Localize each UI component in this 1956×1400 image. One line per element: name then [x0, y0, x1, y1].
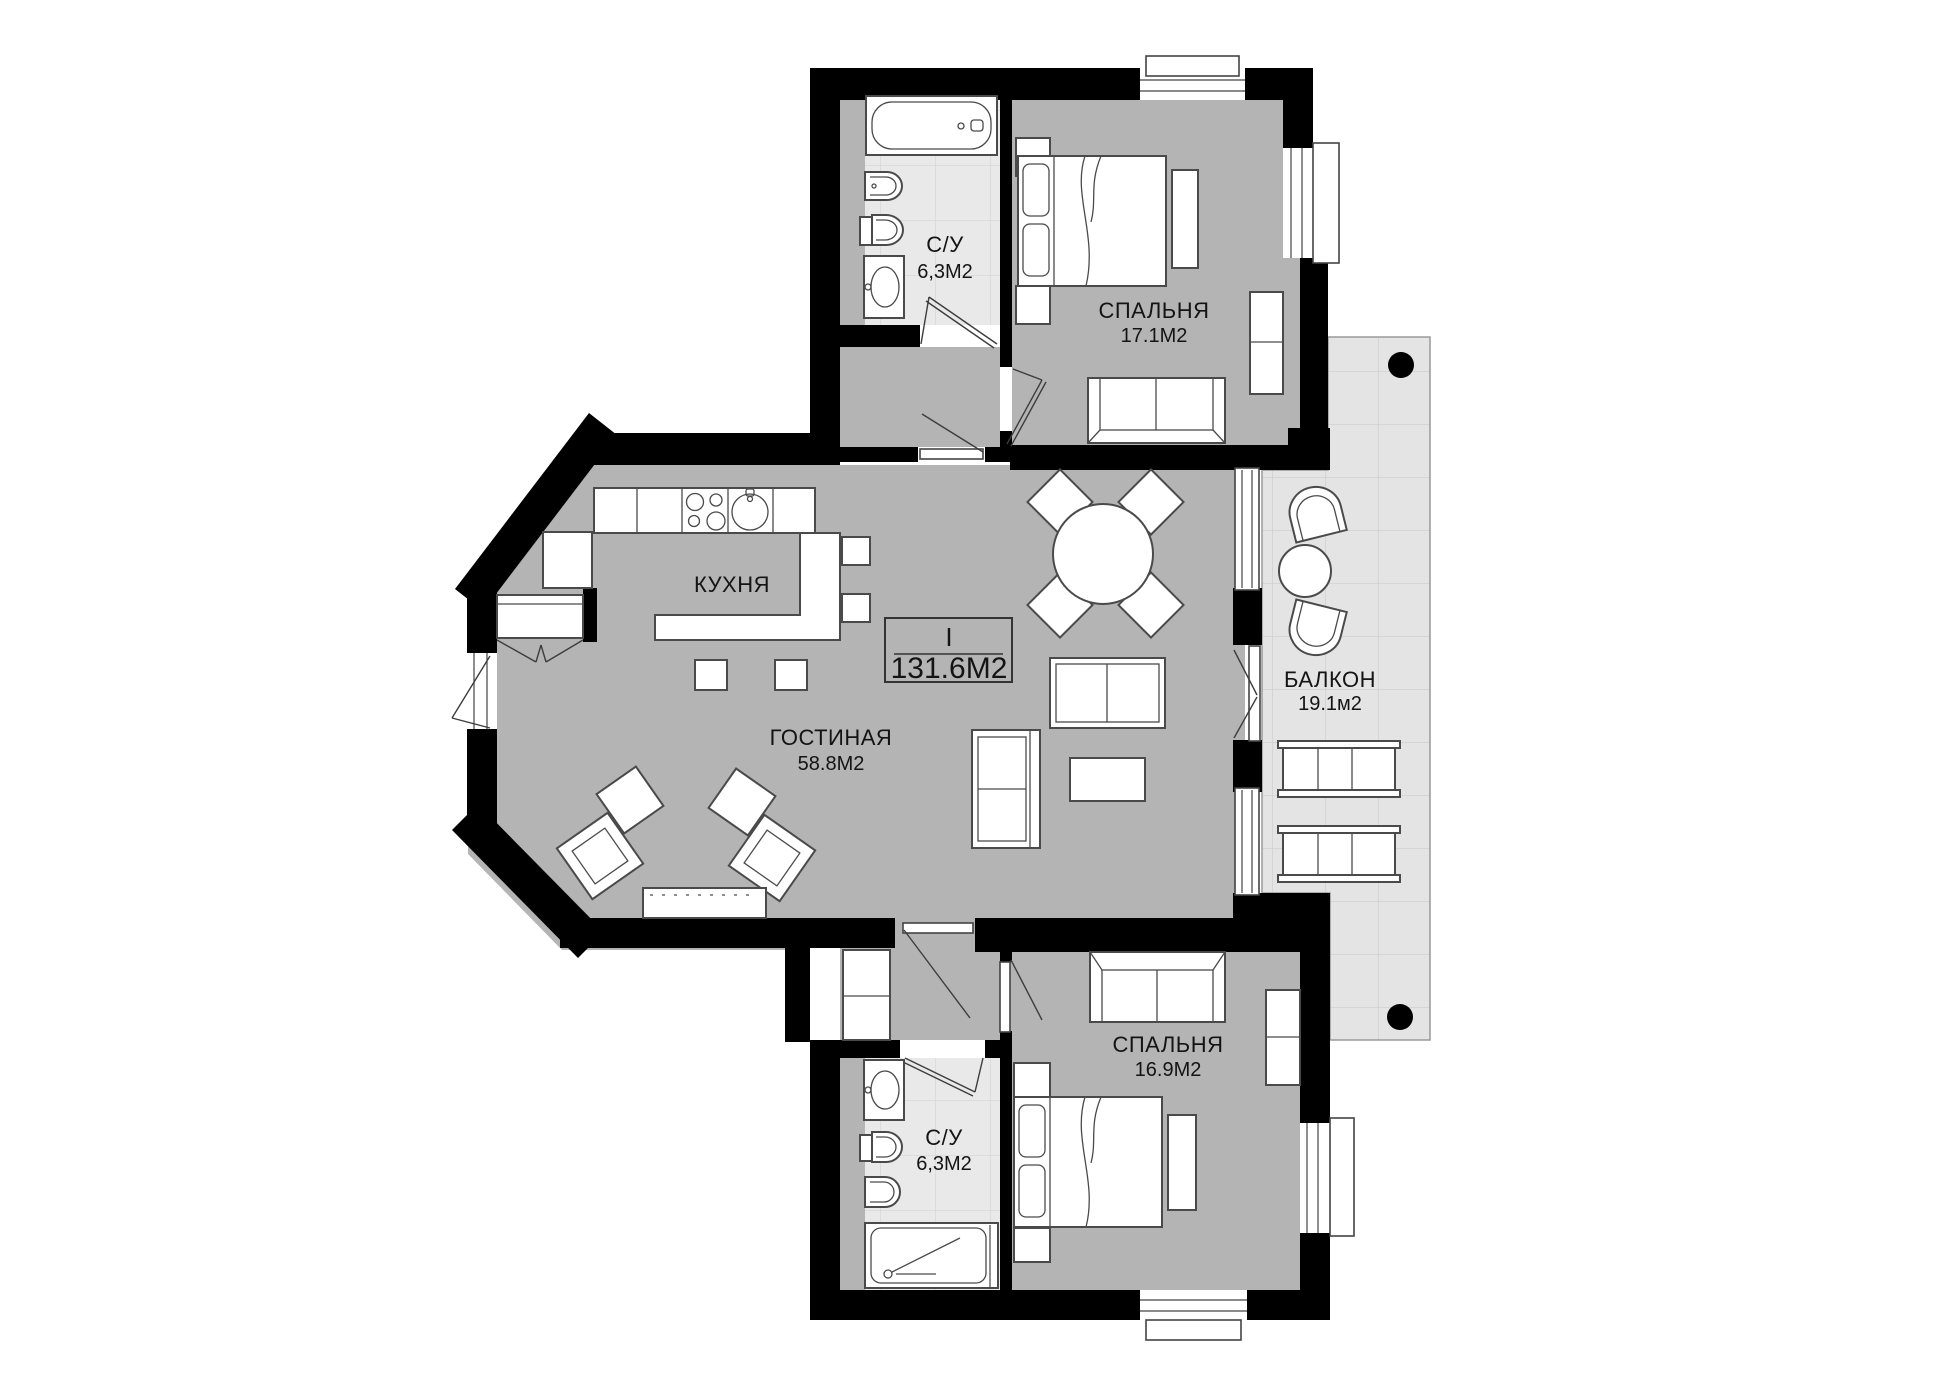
- bed-bench: [1168, 1115, 1196, 1210]
- bar-stool: [695, 660, 727, 690]
- living-area: 58.8М2: [798, 753, 865, 775]
- wardrobe: [843, 950, 890, 1040]
- sun-lounger: [1278, 741, 1400, 797]
- unit-floor-mark: I: [945, 622, 952, 652]
- glass-panel: [1235, 468, 1259, 590]
- sink-icon: [864, 1060, 904, 1120]
- bathtub-icon: [866, 96, 997, 155]
- unit-total-area: 131.6М2: [891, 652, 1008, 685]
- sink-icon: [864, 256, 904, 318]
- bidet-icon: [865, 1177, 900, 1207]
- window: [1140, 1290, 1247, 1340]
- balcony-area: 19.1м2: [1298, 693, 1362, 715]
- wardrobe: [1250, 292, 1283, 394]
- bed-bench: [1172, 170, 1198, 268]
- wardrobe: [1266, 990, 1300, 1085]
- dining-table: [1053, 504, 1153, 604]
- coffee-table: [1070, 758, 1145, 801]
- bathroom-top-label: С/У: [926, 232, 964, 257]
- bed: [1018, 156, 1166, 286]
- toilet-icon: [860, 215, 903, 245]
- bathroom-bottom-strip: [840, 1058, 865, 1290]
- shaft-niche: [810, 948, 840, 1040]
- living-label: ГОСТИНАЯ: [770, 725, 893, 750]
- column: [1387, 1004, 1413, 1030]
- bedroom-bottom-label: СПАЛЬНЯ: [1112, 1032, 1223, 1057]
- bedroom-bottom-area: 16.9М2: [1135, 1059, 1202, 1081]
- sofa: [1088, 378, 1225, 443]
- bathroom-bottom-label: С/У: [925, 1125, 963, 1150]
- kitchen-label: КУХНЯ: [694, 572, 770, 597]
- bidet-icon: [865, 172, 902, 200]
- sun-lounger: [1278, 826, 1400, 882]
- toilet-icon: [860, 1132, 902, 1162]
- shower-icon: [865, 1223, 998, 1288]
- nightstand: [1014, 1228, 1050, 1262]
- coffee-table: [1050, 658, 1165, 728]
- bathroom-top-strip: [840, 100, 865, 325]
- window: [1300, 1118, 1354, 1236]
- bar-stool: [775, 660, 807, 690]
- glass-panel: [1235, 788, 1259, 895]
- nightstand: [1014, 1063, 1050, 1097]
- hallway-top-floor: [840, 347, 1000, 447]
- fridge: [543, 532, 592, 588]
- balcony-table: [1279, 545, 1331, 597]
- tv-console: [643, 888, 766, 918]
- window: [452, 653, 497, 729]
- column: [1388, 352, 1414, 378]
- bedroom-top-area: 17.1М2: [1121, 325, 1188, 347]
- bedroom-top-label: СПАЛЬНЯ: [1098, 298, 1209, 323]
- floor-plan: БАЛКОН 19.1м2: [0, 0, 1956, 1400]
- sofa: [1090, 952, 1225, 1022]
- bathroom-bottom-area: 6,3М2: [916, 1153, 972, 1175]
- bed: [1014, 1097, 1162, 1227]
- bathroom-top-area: 6,3М2: [917, 261, 973, 283]
- window: [1140, 56, 1245, 100]
- floor-plan-page: БАЛКОН 19.1м2: [0, 0, 1956, 1400]
- bar-stool: [842, 594, 870, 622]
- bar-stool: [842, 537, 870, 565]
- nightstand: [1016, 286, 1050, 324]
- hallway-bottom: [843, 950, 890, 1040]
- window: [1283, 143, 1339, 263]
- balcony-label: БАЛКОН: [1284, 667, 1376, 692]
- sofa: [972, 730, 1040, 848]
